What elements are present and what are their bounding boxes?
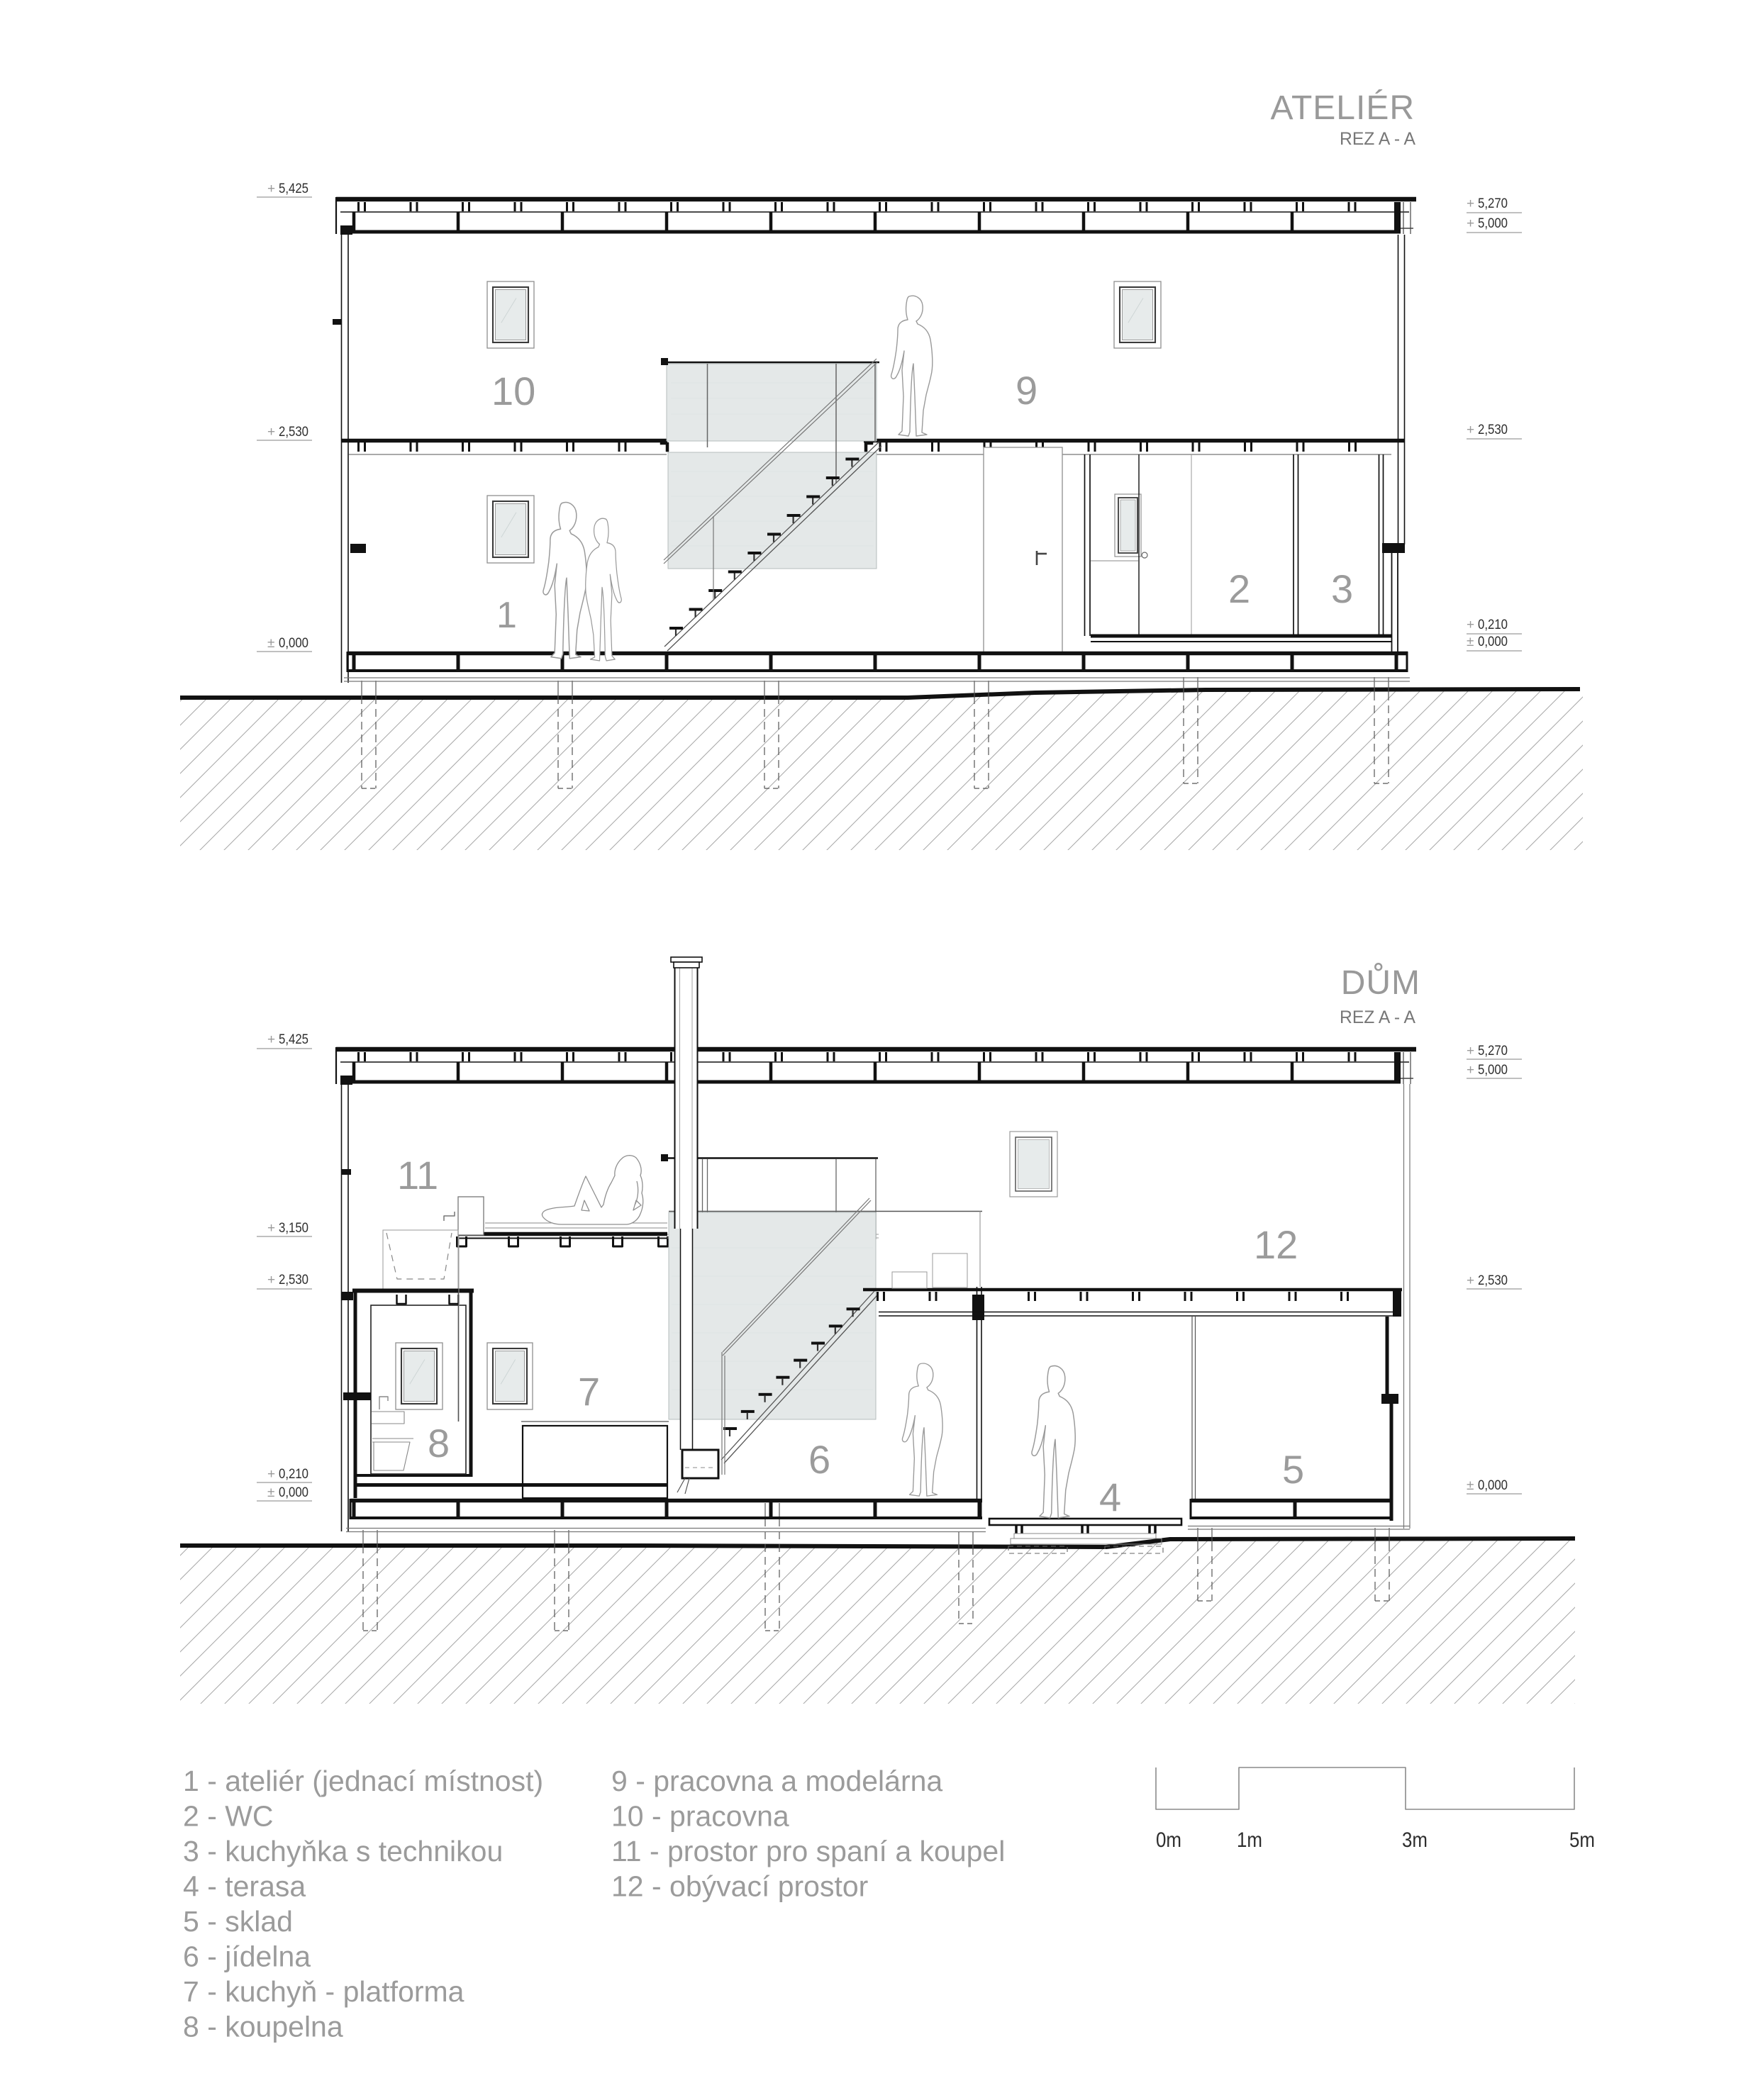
svg-text:0,210: 0,210 (279, 1467, 308, 1482)
svg-text:0,000: 0,000 (279, 1485, 308, 1500)
svg-text:±: ± (1467, 635, 1474, 649)
svg-text:0,000: 0,000 (1478, 635, 1508, 649)
svg-text:+: + (267, 1273, 275, 1288)
svg-text:5,000: 5,000 (1478, 1063, 1508, 1078)
svg-text:5 - sklad: 5 - sklad (183, 1905, 293, 1938)
svg-text:+: + (1467, 423, 1474, 437)
svg-text:5m: 5m (1569, 1828, 1595, 1852)
svg-text:8 - koupelna: 8 - koupelna (183, 2011, 343, 2043)
svg-text:3: 3 (1331, 566, 1353, 611)
svg-text:5,270: 5,270 (1478, 196, 1508, 211)
svg-text:8: 8 (428, 1421, 450, 1465)
svg-text:0,000: 0,000 (1478, 1478, 1508, 1493)
svg-text:1: 1 (496, 595, 517, 636)
svg-text:+: + (267, 1467, 275, 1482)
svg-text:6: 6 (808, 1437, 830, 1482)
svg-text:+: + (1467, 1273, 1474, 1288)
svg-text:+: + (1467, 196, 1474, 211)
svg-text:+: + (267, 181, 275, 196)
svg-text:REZ A - A: REZ A - A (1340, 129, 1415, 149)
svg-text:2 - WC: 2 - WC (183, 1800, 274, 1833)
svg-text:0m: 0m (1156, 1828, 1181, 1852)
svg-text:+: + (267, 1032, 275, 1047)
svg-text:3m: 3m (1402, 1828, 1428, 1852)
svg-text:7: 7 (578, 1369, 600, 1414)
svg-text:+: + (267, 1221, 275, 1236)
svg-text:9: 9 (1016, 368, 1037, 413)
svg-text:REZ A - A: REZ A - A (1340, 1007, 1415, 1027)
svg-text:+: + (1467, 1063, 1474, 1078)
svg-text:DŮM: DŮM (1341, 963, 1420, 1002)
svg-text:2,530: 2,530 (279, 425, 308, 440)
svg-text:±: ± (1467, 1478, 1474, 1493)
svg-text:11: 11 (397, 1153, 438, 1197)
svg-text:6 - jídelna: 6 - jídelna (183, 1940, 311, 1973)
svg-text:+: + (1467, 216, 1474, 231)
svg-text:9 - pracovna a modelárna: 9 - pracovna a modelárna (611, 1765, 942, 1797)
svg-text:±: ± (267, 1485, 274, 1500)
svg-text:3,150: 3,150 (279, 1221, 308, 1236)
svg-text:11 - prostor pro spaní a koupe: 11 - prostor pro spaní a koupel (611, 1835, 1005, 1867)
svg-text:0,000: 0,000 (279, 636, 308, 651)
svg-text:12 - obývací prostor: 12 - obývací prostor (611, 1870, 868, 1903)
svg-text:+: + (1467, 1044, 1474, 1059)
svg-text:2,530: 2,530 (1478, 1273, 1508, 1288)
svg-text:5,425: 5,425 (279, 1032, 308, 1047)
svg-text:4 - terasa: 4 - terasa (183, 1870, 306, 1903)
svg-text:5,425: 5,425 (279, 181, 308, 196)
svg-text:5: 5 (1282, 1447, 1304, 1492)
svg-text:ATELIÉR: ATELIÉR (1271, 89, 1415, 127)
svg-text:5,000: 5,000 (1478, 216, 1508, 231)
svg-text:2,530: 2,530 (1478, 423, 1508, 437)
svg-text:3 - kuchyňka s technikou: 3 - kuchyňka s technikou (183, 1835, 503, 1867)
svg-text:1 - ateliér (jednací místnost): 1 - ateliér (jednací místnost) (183, 1765, 543, 1797)
svg-text:10 - pracovna: 10 - pracovna (611, 1800, 789, 1833)
svg-text:2,530: 2,530 (279, 1273, 308, 1288)
svg-text:0,210: 0,210 (1478, 618, 1508, 632)
svg-text:+: + (1467, 618, 1474, 632)
svg-text:12: 12 (1254, 1222, 1298, 1267)
svg-text:4: 4 (1099, 1475, 1121, 1519)
svg-text:±: ± (267, 636, 274, 651)
svg-text:+: + (267, 425, 275, 440)
svg-text:10: 10 (491, 369, 535, 413)
svg-text:2: 2 (1228, 566, 1250, 611)
svg-text:1m: 1m (1237, 1828, 1262, 1852)
svg-text:5,270: 5,270 (1478, 1044, 1508, 1059)
svg-text:7 - kuchyň - platforma: 7 - kuchyň - platforma (183, 1975, 464, 2008)
